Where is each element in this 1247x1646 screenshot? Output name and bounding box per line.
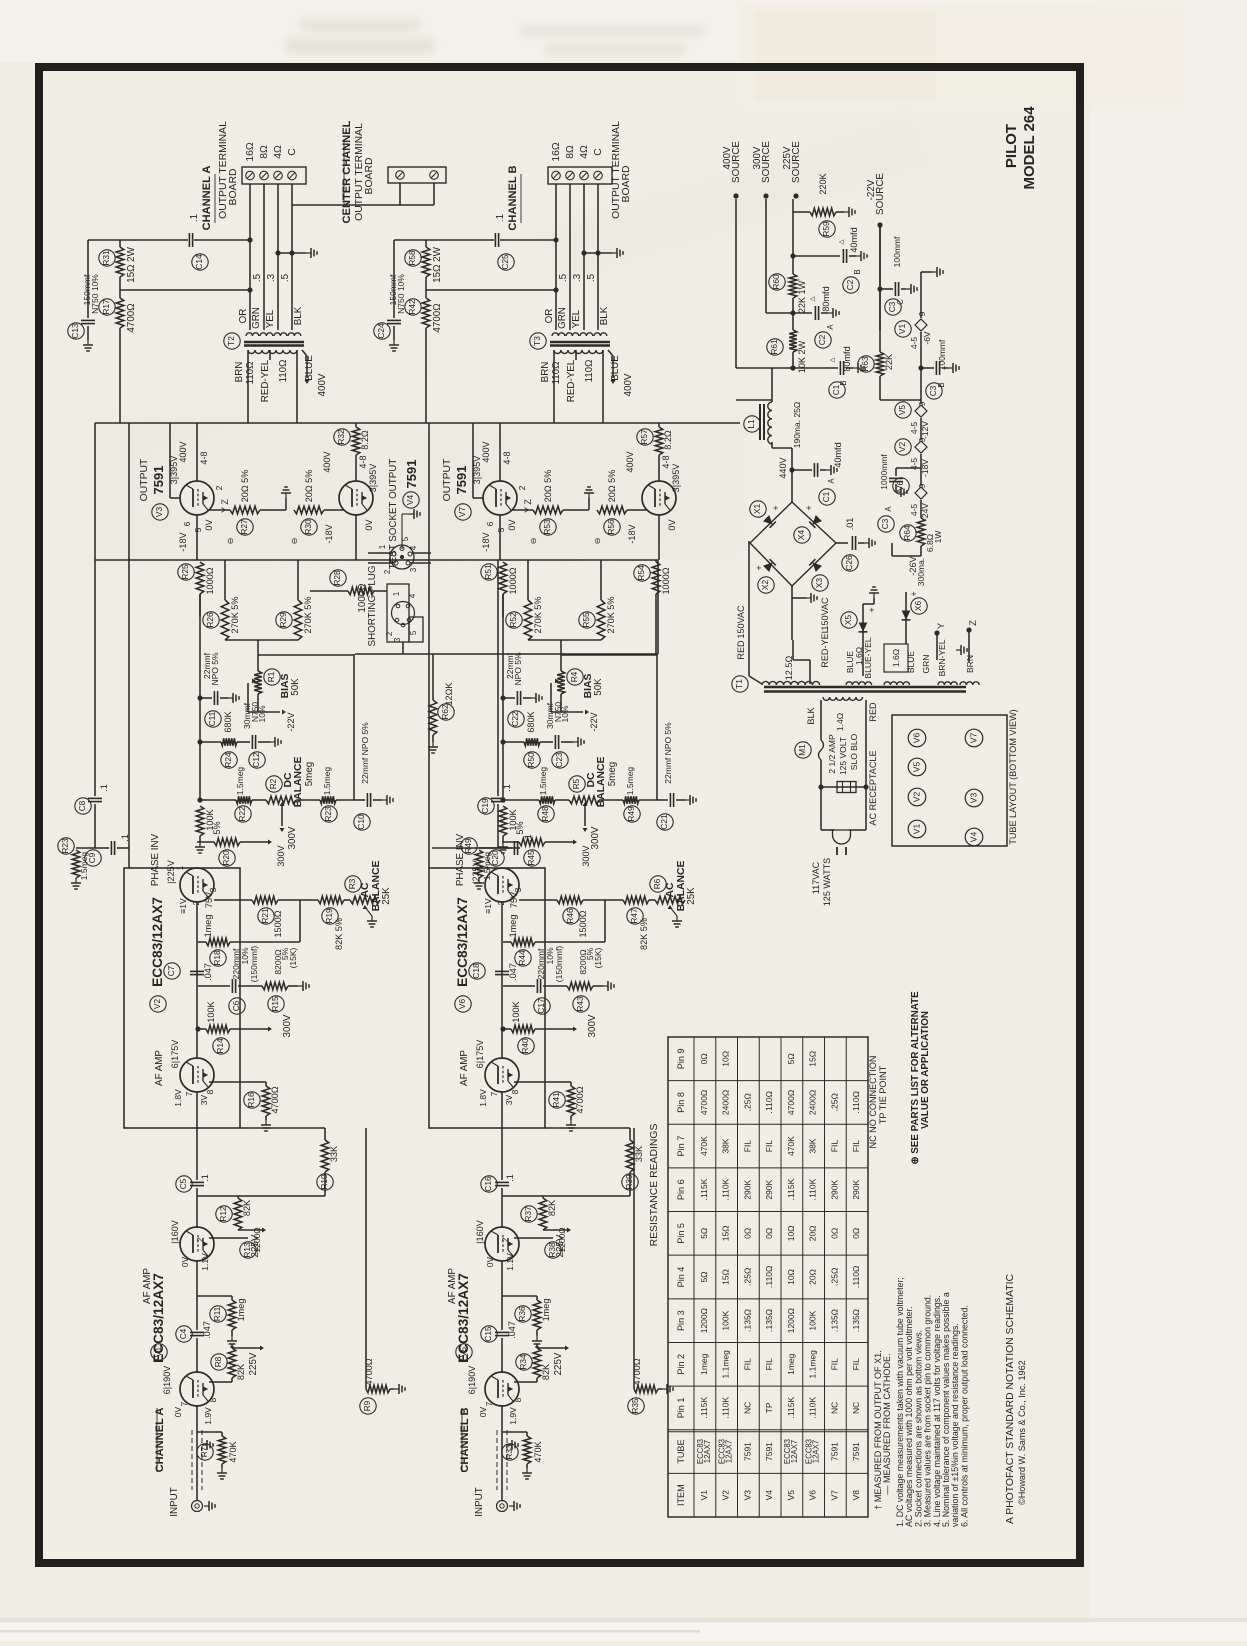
svg-text:.047: .047 [203, 963, 213, 981]
svg-text:T2: T2 [226, 336, 236, 346]
svg-text:R54: R54 [636, 565, 646, 581]
svg-text:C6: C6 [231, 1000, 241, 1011]
svg-text:0Ω: 0Ω [851, 1228, 861, 1239]
svg-text:-18V: -18V [178, 531, 188, 551]
svg-text:SOURCE: SOURCE [875, 173, 886, 215]
svg-text:2: 2 [191, 900, 201, 905]
svg-text:․110K: ․110K [721, 1178, 731, 1200]
svg-text:V6: V6 [912, 733, 922, 744]
svg-text:15Ω: 15Ω [721, 1225, 731, 1241]
svg-text:R10: R10 [319, 1174, 329, 1190]
svg-text:.047: .047 [507, 1321, 517, 1339]
svg-text:4-5: 4-5 [909, 504, 919, 517]
svg-text:V4: V4 [969, 832, 979, 843]
svg-text:․25Ω: ․25Ω [742, 1268, 752, 1287]
svg-text:7: 7 [184, 1091, 194, 1096]
svg-text:20Ω 5%: 20Ω 5% [240, 470, 250, 503]
svg-text:C24: C24 [376, 323, 386, 339]
svg-text:FIL: FIL [851, 1140, 861, 1153]
svg-text:․110Ω: ․110Ω [764, 1266, 774, 1289]
svg-text:0V: 0V [507, 519, 517, 531]
svg-text:R38: R38 [547, 1242, 557, 1258]
svg-text:R64: R64 [902, 525, 912, 541]
svg-text:9: 9 [917, 401, 927, 406]
svg-text:4-8: 4-8 [358, 455, 368, 468]
svg-text:R51: R51 [483, 564, 493, 580]
svg-text:80mfd: 80mfd [821, 286, 831, 311]
svg-text:33K: 33K [329, 1146, 339, 1162]
svg-text:20Ω 5%: 20Ω 5% [304, 470, 314, 503]
svg-text:FIL: FIL [829, 1358, 839, 1371]
svg-text:A: A [884, 506, 893, 512]
svg-text:GRN: GRN [557, 307, 568, 329]
svg-text:20Ω 5%: 20Ω 5% [543, 470, 553, 503]
svg-text:⊖: ⊖ [290, 538, 299, 545]
svg-text:125 VOLT: 125 VOLT [838, 737, 848, 775]
svg-text:C17: C17 [536, 998, 546, 1014]
svg-text:Pin 8: Pin 8 [676, 1092, 686, 1113]
svg-text:R15: R15 [270, 996, 280, 1012]
svg-text:R5: R5 [571, 778, 581, 789]
svg-text:A: A [827, 478, 836, 484]
svg-text:R57: R57 [639, 429, 649, 445]
svg-text:R26: R26 [205, 612, 215, 628]
svg-text:4Ω: 4Ω [579, 145, 590, 159]
svg-text:7591: 7591 [404, 460, 419, 489]
svg-text:R25: R25 [180, 564, 190, 580]
svg-text:C3: C3 [880, 518, 890, 529]
svg-text:.1: .1 [200, 1174, 210, 1182]
svg-text:5: 5 [496, 527, 506, 532]
svg-text:R36: R36 [517, 1306, 527, 1322]
svg-text:AC RECEPTACLE: AC RECEPTACLE [868, 750, 878, 825]
svg-text:©Howard W. Sams & Co., Inc. 19: ©Howard W. Sams & Co., Inc. 1962 [1017, 1360, 1027, 1505]
svg-text:C7: C7 [166, 965, 176, 976]
svg-text:V7: V7 [829, 1490, 839, 1501]
svg-text:B: B [839, 380, 848, 385]
svg-text:80mfd: 80mfd [842, 346, 852, 371]
svg-text:1.8V: 1.8V [478, 1089, 488, 1107]
svg-text:300V: 300V [581, 844, 591, 866]
svg-text:R35: R35 [630, 1398, 640, 1414]
svg-text:-18V: -18V [481, 531, 491, 551]
svg-text:NPO 5%: NPO 5% [210, 652, 220, 686]
svg-text:1: 1 [175, 865, 185, 870]
svg-text:BOARD: BOARD [228, 169, 239, 206]
svg-text:V5: V5 [912, 762, 922, 773]
svg-text:8: 8 [208, 1397, 218, 1402]
svg-text:․110Ω: ․110Ω [851, 1091, 861, 1114]
svg-text:0V: 0V [180, 1256, 190, 1267]
svg-text:400V: 400V [481, 440, 491, 462]
svg-text:7: 7 [489, 1091, 499, 1096]
svg-text:0V: 0V [667, 519, 677, 531]
svg-text:R22: R22 [237, 806, 247, 822]
svg-text:OUTPUT: OUTPUT [442, 458, 453, 501]
svg-text:V1: V1 [912, 824, 922, 835]
svg-text:1.8V: 1.8V [173, 1089, 183, 1107]
svg-text:Pin 5: Pin 5 [676, 1223, 686, 1244]
svg-text:0Ω: 0Ω [699, 1053, 709, 1064]
svg-text:4700Ω: 4700Ω [270, 1086, 280, 1113]
svg-text:25K: 25K [686, 887, 697, 905]
svg-text:5meg: 5meg [607, 762, 618, 787]
svg-text:R9: R9 [362, 1400, 372, 1411]
svg-text:290K: 290K [829, 1179, 839, 1199]
svg-text:1.5meg: 1.5meg [235, 767, 245, 796]
svg-text:1meg: 1meg [786, 1353, 796, 1375]
svg-text:5Ω: 5Ω [699, 1271, 709, 1282]
svg-text:270K 5%: 270K 5% [230, 597, 240, 634]
svg-text:B: B [937, 382, 946, 387]
svg-text:BLUE-YEL: BLUE-YEL [863, 637, 873, 678]
svg-text:C: C [593, 148, 604, 156]
svg-text:125 WATTS: 125 WATTS [822, 858, 832, 907]
svg-text:1.1meg: 1.1meg [721, 1350, 731, 1379]
svg-text:V1: V1 [153, 1347, 163, 1358]
svg-text:C12: C12 [251, 752, 261, 768]
svg-text:․25Ω: ․25Ω [829, 1268, 839, 1287]
svg-text:Y: Y [936, 623, 946, 629]
svg-text:X4: X4 [796, 530, 806, 541]
svg-text:C15: C15 [483, 1326, 493, 1342]
svg-text:Pin 1: Pin 1 [676, 1398, 686, 1419]
svg-text:SHORTING PLUG: SHORTING PLUG [367, 566, 378, 647]
svg-text:400V: 400V [625, 450, 635, 472]
svg-text:PILOT: PILOT [1003, 124, 1020, 168]
svg-text:1W: 1W [933, 531, 943, 544]
svg-text:RED-YEL: RED-YEL [566, 359, 577, 402]
svg-text:1200Ω: 1200Ω [557, 1227, 567, 1252]
svg-text:7591: 7591 [742, 1442, 752, 1461]
svg-text:5meg: 5meg [304, 762, 315, 787]
svg-text:1200Ω: 1200Ω [699, 1308, 709, 1333]
svg-text:2: 2 [195, 1237, 205, 1242]
svg-text:75V: 75V [509, 891, 519, 908]
svg-text:R49: R49 [626, 806, 636, 822]
svg-text:V2: V2 [152, 999, 162, 1010]
svg-text:․135Ω: ․135Ω [851, 1309, 861, 1332]
svg-text:22K 1W: 22K 1W [797, 280, 807, 313]
svg-text:225V: 225V [553, 1352, 564, 1375]
svg-text:0Ω: 0Ω [742, 1228, 752, 1239]
svg-text:1meg: 1meg [508, 915, 518, 938]
svg-text:190ma. 25Ω: 190ma. 25Ω [792, 402, 802, 449]
svg-text:100mmf: 100mmf [892, 236, 902, 267]
svg-text:3: 3 [208, 887, 218, 892]
svg-text:400V: 400V [322, 450, 332, 472]
svg-text:7: 7 [484, 1401, 494, 1406]
svg-text:OR: OR [544, 309, 555, 324]
svg-text:MODEL 264: MODEL 264 [1021, 106, 1038, 190]
svg-text:+: + [771, 505, 781, 510]
svg-text:SOURCE: SOURCE [731, 141, 742, 183]
svg-text:1.1V: 1.1V [200, 1253, 210, 1271]
svg-text:20Ω: 20Ω [808, 1225, 818, 1241]
svg-text:400V: 400V [178, 440, 188, 462]
svg-text:R39: R39 [624, 1174, 634, 1190]
svg-text:R50: R50 [526, 752, 536, 768]
svg-text:1.5meg: 1.5meg [79, 852, 89, 881]
svg-text:8.2Ω: 8.2Ω [360, 430, 370, 450]
svg-text:PHASE INV: PHASE INV [455, 833, 466, 886]
svg-text:R3: R3 [347, 878, 357, 889]
svg-text:R30: R30 [303, 519, 313, 535]
svg-text:R60: R60 [771, 274, 781, 290]
svg-text:0V: 0V [364, 519, 374, 531]
svg-text:R13: R13 [242, 1242, 252, 1258]
svg-text:R17: R17 [101, 299, 111, 315]
svg-text:C19: C19 [480, 798, 490, 814]
svg-text:․115K: ․115K [699, 1397, 709, 1419]
svg-text:A PHOTOFACT STANDARD NOTATI: A PHOTOFACT STANDARD NOTATION SCHEMATIC [1005, 1274, 1016, 1524]
svg-text:V3: V3 [154, 507, 164, 518]
svg-text:R4: R4 [569, 671, 579, 682]
svg-text:10Ω: 10Ω [721, 1051, 731, 1067]
svg-text:X6: X6 [913, 601, 923, 612]
svg-text:8: 8 [513, 1397, 523, 1402]
svg-text:2: 2 [500, 1237, 510, 1242]
svg-text:.1: .1 [495, 214, 506, 222]
svg-text:33K: 33K [634, 1146, 644, 1162]
svg-text:6: 6 [182, 521, 192, 526]
svg-text:V5: V5 [458, 1347, 468, 1358]
svg-text:1.5meg: 1.5meg [322, 767, 332, 796]
svg-text:300ma.: 300ma. [916, 558, 926, 586]
svg-text:R42: R42 [407, 299, 417, 315]
svg-text:R40: R40 [520, 1038, 530, 1054]
svg-text:290K: 290K [851, 1179, 861, 1199]
svg-text:R8: R8 [213, 1356, 223, 1367]
svg-text:C25: C25 [500, 254, 510, 270]
svg-text:NC: NC [829, 1402, 839, 1414]
svg-text:X3: X3 [814, 578, 824, 589]
svg-text:1meg: 1meg [699, 1353, 709, 1375]
svg-text:38K: 38K [721, 1138, 731, 1153]
svg-text:12AX7: 12AX7 [812, 1440, 821, 1463]
svg-text:X2: X2 [760, 580, 770, 591]
svg-text:(15K): (15K) [288, 947, 298, 968]
svg-text:SLO BLO: SLO BLO [849, 733, 859, 770]
svg-text:M1: M1 [797, 744, 807, 756]
svg-text:.047: .047 [508, 963, 518, 981]
svg-text:4700Ω: 4700Ω [786, 1090, 796, 1115]
svg-text:-22V: -22V [286, 711, 296, 731]
svg-text:4: 4 [409, 545, 418, 550]
svg-text:5%: 5% [212, 821, 222, 834]
svg-text:9: 9 [917, 437, 927, 442]
svg-text:6|190V: 6|190V [162, 1365, 172, 1395]
svg-text:․115K: ․115K [699, 1178, 709, 1200]
svg-text:+: + [754, 565, 764, 570]
svg-text:V3: V3 [969, 793, 979, 804]
svg-text:-18V: -18V [324, 523, 334, 543]
svg-text:TP TIE POINT: TP TIE POINT [878, 1065, 888, 1124]
svg-text:290K: 290K [742, 1179, 752, 1199]
svg-text:CHANNEL B: CHANNEL B [459, 1407, 471, 1472]
svg-text:+: + [804, 505, 814, 510]
svg-text:․115K: ․115K [786, 1397, 796, 1419]
svg-text:0V: 0V [485, 1256, 495, 1267]
svg-text:4Ω: 4Ω [273, 145, 284, 159]
svg-text:R2: R2 [268, 778, 278, 789]
svg-text:.5: .5 [280, 273, 291, 282]
svg-text:OR: OR [238, 309, 249, 324]
svg-text:BRN: BRN [234, 362, 245, 383]
svg-text:8.2Ω: 8.2Ω [663, 430, 673, 450]
svg-text:5%: 5% [515, 821, 525, 834]
svg-text:V1: V1 [897, 324, 907, 335]
svg-text:≡1V: ≡1V [483, 898, 493, 914]
svg-text:12AX7: 12AX7 [725, 1440, 734, 1463]
svg-text:4-8: 4-8 [502, 451, 512, 464]
svg-text:L1: L1 [746, 419, 756, 429]
svg-text:NPO 5%: NPO 5% [513, 652, 523, 686]
svg-text:1500Ω: 1500Ω [578, 910, 588, 937]
svg-text:R34: R34 [518, 1354, 528, 1370]
svg-text:R16: R16 [246, 1092, 256, 1108]
svg-text:R23: R23 [323, 806, 333, 822]
svg-text:.5: .5 [252, 273, 263, 282]
svg-text:BOARD: BOARD [364, 158, 375, 195]
svg-text:10Ω: 10Ω [786, 1269, 796, 1285]
svg-text:R32: R32 [336, 429, 346, 445]
svg-text:2400Ω: 2400Ω [721, 1090, 731, 1115]
svg-text:1200Ω: 1200Ω [252, 1227, 262, 1252]
svg-text:22mmf NPO 5%: 22mmf NPO 5% [360, 722, 370, 784]
svg-text:․135Ω: ․135Ω [764, 1309, 774, 1332]
svg-text:V4: V4 [405, 495, 415, 506]
svg-text:1: 1 [480, 865, 490, 870]
svg-text:․25Ω: ․25Ω [742, 1093, 752, 1112]
svg-text:RED-YEL: RED-YEL [820, 628, 830, 667]
svg-text:⊖: ⊖ [226, 538, 235, 545]
svg-text:5: 5 [409, 630, 418, 635]
svg-text:C2: C2 [817, 334, 827, 345]
svg-text:15Ω: 15Ω [721, 1269, 731, 1285]
svg-text:110Ω: 110Ω [278, 360, 289, 383]
svg-text:1000mmf: 1000mmf [879, 454, 889, 490]
svg-text:4700Ω: 4700Ω [432, 303, 443, 332]
svg-text:BLUE: BLUE [906, 651, 916, 674]
svg-text:BOARD: BOARD [621, 166, 632, 203]
svg-text:225V: 225V [248, 1352, 259, 1375]
svg-text:8Ω: 8Ω [259, 145, 270, 159]
svg-text:R12: R12 [218, 1206, 228, 1222]
svg-text:+: + [909, 591, 919, 596]
svg-text:V7: V7 [457, 507, 467, 518]
svg-text:AC: AC [360, 882, 371, 898]
svg-text:C23: C23 [554, 752, 564, 768]
svg-text:FIL: FIL [764, 1358, 774, 1371]
svg-text:R45: R45 [526, 850, 536, 866]
svg-text:V5: V5 [897, 405, 907, 416]
svg-text:․135Ω: ․135Ω [829, 1309, 839, 1332]
svg-text:.01: .01 [845, 518, 855, 531]
svg-text:AF AMP: AF AMP [459, 1050, 470, 1086]
svg-text:R21: R21 [260, 908, 270, 924]
svg-text:400V: 400V [317, 373, 328, 396]
svg-text:110Ω: 110Ω [551, 362, 562, 385]
svg-text:3|395V: 3|395V [472, 455, 482, 485]
svg-text:82K: 82K [242, 1200, 252, 1216]
svg-text:R1: R1 [266, 671, 276, 682]
svg-text:V5: V5 [786, 1490, 796, 1501]
svg-text:50K: 50K [593, 678, 604, 696]
svg-text:3|395V: 3|395V [671, 463, 681, 493]
svg-text:3V: 3V [199, 1094, 209, 1105]
svg-text:6|175V: 6|175V [170, 1039, 180, 1069]
svg-text:12AX7: 12AX7 [790, 1440, 799, 1463]
svg-text:TP: TP [764, 1402, 774, 1413]
svg-text:RESISTANCE READINGS: RESISTANCE READINGS [649, 1124, 660, 1247]
svg-text:PHASE INV: PHASE INV [150, 833, 161, 886]
svg-text:Y Z: Y Z [220, 499, 230, 513]
svg-text:8: 8 [510, 1089, 520, 1094]
svg-text:R48: R48 [540, 806, 550, 822]
svg-text:8: 8 [205, 1089, 215, 1094]
svg-text:10%: 10% [560, 705, 570, 722]
svg-text:C2: C2 [845, 279, 855, 290]
svg-text:38K: 38K [808, 1138, 818, 1153]
svg-text:ECC83/12AX7: ECC83/12AX7 [455, 897, 470, 987]
svg-text:YEL: YEL [265, 309, 276, 328]
svg-text:C1: C1 [821, 491, 831, 502]
svg-text:V3: V3 [742, 1490, 752, 1501]
svg-text:12ΩK: 12ΩK [444, 683, 454, 706]
svg-text:6. All controls at minimum, p: 6. All controls at minimum, proper outpu… [959, 1305, 969, 1527]
svg-text:C10: C10 [356, 814, 366, 830]
svg-text:3: 3 [513, 887, 523, 892]
svg-text:ITEM: ITEM [676, 1484, 686, 1506]
svg-text:C14: C14 [194, 254, 204, 270]
svg-text:100K: 100K [206, 1001, 216, 1022]
svg-text:4700Ω: 4700Ω [575, 1086, 585, 1113]
svg-text:1.4Ω: 1.4Ω [835, 713, 845, 731]
svg-text:270K 5%: 270K 5% [303, 597, 313, 634]
svg-text:V1: V1 [699, 1490, 709, 1501]
svg-text:15Ω 2W: 15Ω 2W [432, 246, 443, 282]
svg-text:BRN-YEL: BRN-YEL [937, 639, 947, 676]
svg-text:150VAC: 150VAC [820, 597, 830, 631]
svg-text:75V: 75V [204, 891, 214, 908]
svg-text:T3: T3 [532, 336, 542, 346]
svg-text:40mfd: 40mfd [833, 442, 843, 467]
svg-text:R23: R23 [60, 838, 70, 854]
svg-text:Pin 9: Pin 9 [676, 1048, 686, 1069]
svg-text:TUBE: TUBE [676, 1439, 686, 1463]
svg-text:110Ω: 110Ω [584, 360, 595, 383]
svg-text:R19: R19 [324, 908, 334, 924]
svg-text:1meg: 1meg [236, 1299, 246, 1322]
svg-text:BRN: BRN [965, 655, 975, 673]
svg-text:16Ω: 16Ω [551, 142, 562, 162]
svg-text:Pin 7: Pin 7 [676, 1136, 686, 1157]
svg-text:FIL: FIL [829, 1140, 839, 1153]
svg-text:A: A [826, 324, 835, 330]
svg-text:1000Ω: 1000Ω [661, 567, 671, 594]
svg-text:300V: 300V [590, 826, 601, 849]
svg-text:2: 2 [496, 900, 506, 905]
svg-text:R20: R20 [221, 850, 231, 866]
svg-text:150VAC: 150VAC [736, 605, 746, 639]
svg-text:4-5: 4-5 [909, 337, 919, 350]
svg-text:R46: R46 [565, 908, 575, 924]
svg-text:FIL: FIL [851, 1358, 861, 1371]
svg-text:X1: X1 [752, 504, 762, 515]
svg-text:.3: .3 [572, 273, 583, 282]
svg-text:12AX7: 12AX7 [703, 1440, 712, 1463]
